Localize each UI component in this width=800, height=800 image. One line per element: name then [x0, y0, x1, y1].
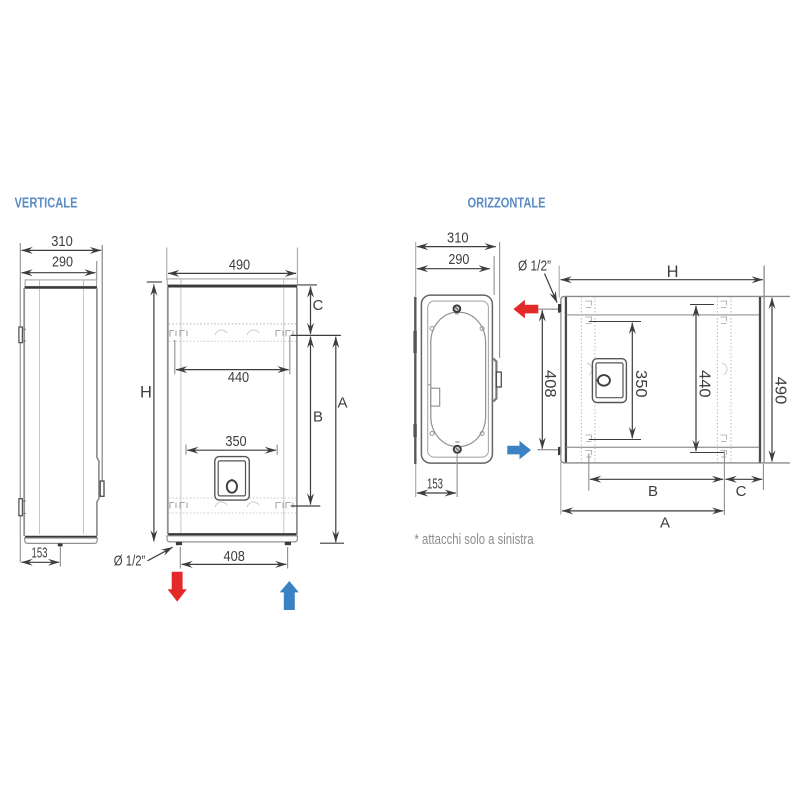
svg-text:VERTICALE: VERTICALE	[15, 196, 78, 212]
svg-text:290: 290	[52, 254, 73, 270]
svg-text:408: 408	[541, 370, 558, 398]
svg-text:B: B	[313, 408, 323, 425]
svg-text:H: H	[140, 384, 152, 402]
svg-text:310: 310	[447, 230, 469, 246]
svg-text:* attacchi solo a sinistra: * attacchi solo a sinistra	[415, 532, 535, 548]
svg-text:153: 153	[32, 546, 48, 562]
svg-text:153: 153	[427, 476, 443, 492]
svg-text:440: 440	[228, 370, 249, 386]
svg-text:408: 408	[224, 549, 245, 565]
svg-text:Ø 1/2”: Ø 1/2”	[114, 552, 146, 569]
svg-text:440: 440	[696, 370, 713, 398]
svg-text:350: 350	[632, 370, 649, 398]
svg-text:310: 310	[51, 234, 73, 250]
svg-text:C: C	[312, 297, 323, 314]
svg-text:490: 490	[772, 377, 789, 405]
svg-text:ORIZZONTALE: ORIZZONTALE	[468, 196, 546, 212]
svg-text:490: 490	[229, 258, 250, 274]
svg-text:Ø 1/2”: Ø 1/2”	[518, 257, 551, 274]
svg-text:290: 290	[448, 252, 469, 268]
svg-text:B: B	[648, 483, 658, 500]
svg-text:A: A	[660, 514, 670, 531]
svg-text:C: C	[736, 483, 747, 500]
svg-text:A: A	[337, 395, 347, 412]
svg-text:350: 350	[225, 434, 246, 450]
svg-text:H: H	[667, 263, 679, 281]
